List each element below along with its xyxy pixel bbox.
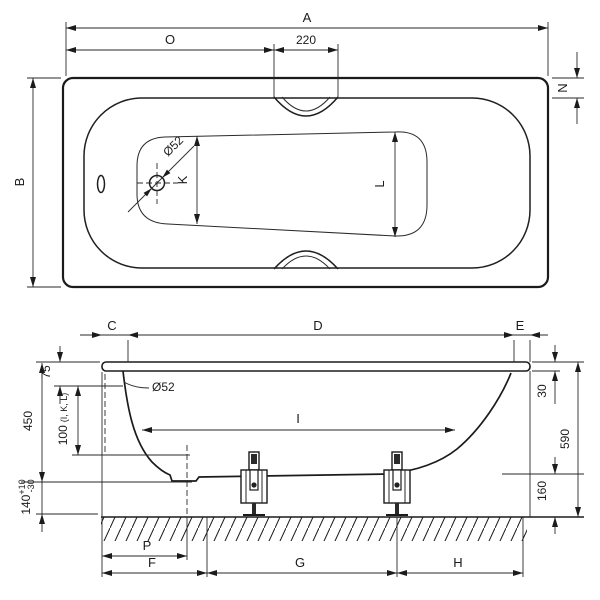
- dim-label-75: 75: [39, 365, 53, 379]
- overflow-callout: Ø52: [124, 380, 175, 394]
- overflow-hole: [98, 176, 105, 193]
- dim-interior-length: I: [142, 411, 455, 430]
- technical-drawing-page: Ø52 A O 220 N B: [0, 0, 600, 600]
- dim-label-f: F: [148, 555, 156, 570]
- dim-label-floor-width-l: L: [372, 180, 387, 187]
- drain: Ø52: [128, 133, 194, 212]
- foot-right: [384, 452, 410, 515]
- dim-label-p: P: [143, 538, 152, 553]
- dim-label-d: D: [313, 318, 322, 333]
- dim-cde-chain: C D E: [80, 318, 548, 335]
- dim-label-rim-width: N: [555, 83, 570, 92]
- top-view: Ø52 A O 220 N B: [12, 10, 584, 287]
- side-view: Ø52 C D E 75 100(I, K, L) 450: [17, 318, 584, 577]
- tub-profile: [123, 371, 511, 481]
- dim-label-160: 160: [535, 481, 549, 501]
- dim-label-590: 590: [558, 429, 572, 449]
- dim-label-i: I: [296, 411, 300, 426]
- dim-interior-depth: 450: [21, 363, 42, 482]
- dim-label-g: G: [295, 555, 305, 570]
- dim-100-value: 100: [56, 425, 70, 445]
- ground-hatch: [101, 518, 527, 542]
- dim-grip-width: 220: [274, 33, 338, 97]
- dim-rim-width: N: [552, 52, 584, 124]
- dim-label-overflow-diameter: Ø52: [152, 380, 175, 394]
- dim-140-value: 140: [19, 494, 33, 514]
- dim-label-100: 100(I, K, L): [56, 393, 70, 446]
- foot-left: [241, 452, 267, 515]
- grip-recess-top: [274, 97, 338, 116]
- dim-rim-section-height: 30: [535, 345, 555, 404]
- dim-label-overall-width: B: [12, 178, 27, 187]
- dim-label-floor-width-k: K: [175, 175, 190, 184]
- dim-label-overall-length: A: [303, 10, 312, 25]
- dim-foot-height: 140+10-30: [17, 479, 42, 532]
- dim-label-e: E: [516, 318, 525, 333]
- dim-drain-offset: O: [66, 32, 274, 50]
- dim-label-450: 450: [21, 411, 35, 431]
- dim-total-height: 590: [558, 362, 578, 517]
- dim-fgh-chain: F G H: [102, 555, 523, 573]
- dim-label-c: C: [107, 318, 116, 333]
- dim-floor-width-foot-end: L: [372, 132, 395, 237]
- rim-section: [102, 362, 530, 371]
- dim-overall-width: B: [12, 78, 61, 287]
- dim-label-30: 30: [535, 384, 549, 398]
- grip-recess-bottom: [274, 251, 338, 269]
- dim-label-drain-offset: O: [165, 32, 175, 47]
- bathtub-drawing-svg: Ø52 A O 220 N B: [0, 0, 600, 600]
- dim-label-h: H: [453, 555, 462, 570]
- dim-under-clearance: 160: [535, 457, 555, 534]
- dim-100-note: (I, K, L): [59, 393, 69, 423]
- dim-label-grip-width: 220: [296, 33, 316, 47]
- dim-label-140: 140+10-30: [17, 479, 36, 514]
- dim-140-tol-minus: -30: [26, 479, 36, 492]
- dim-measure-height: 100(I, K, L): [56, 386, 78, 455]
